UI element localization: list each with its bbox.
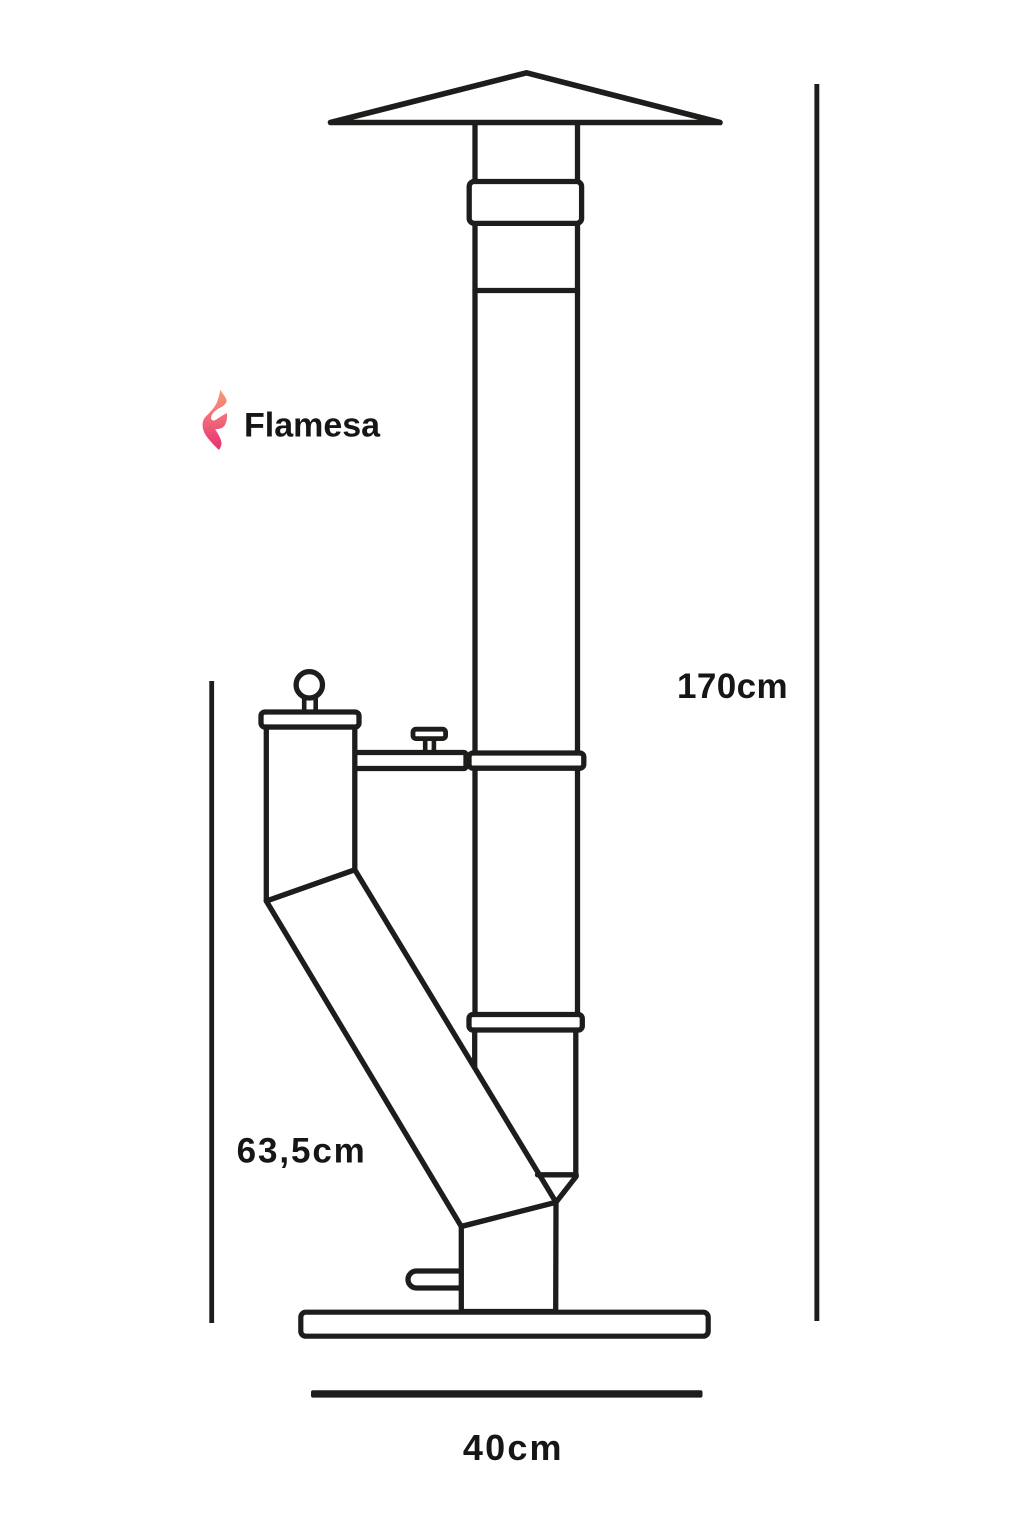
svg-text:63,5cm: 63,5cm (237, 1131, 367, 1170)
svg-text:170cm: 170cm (677, 667, 788, 706)
svg-text:40cm: 40cm (463, 1427, 564, 1468)
svg-text:Flamesa: Flamesa (244, 406, 381, 444)
